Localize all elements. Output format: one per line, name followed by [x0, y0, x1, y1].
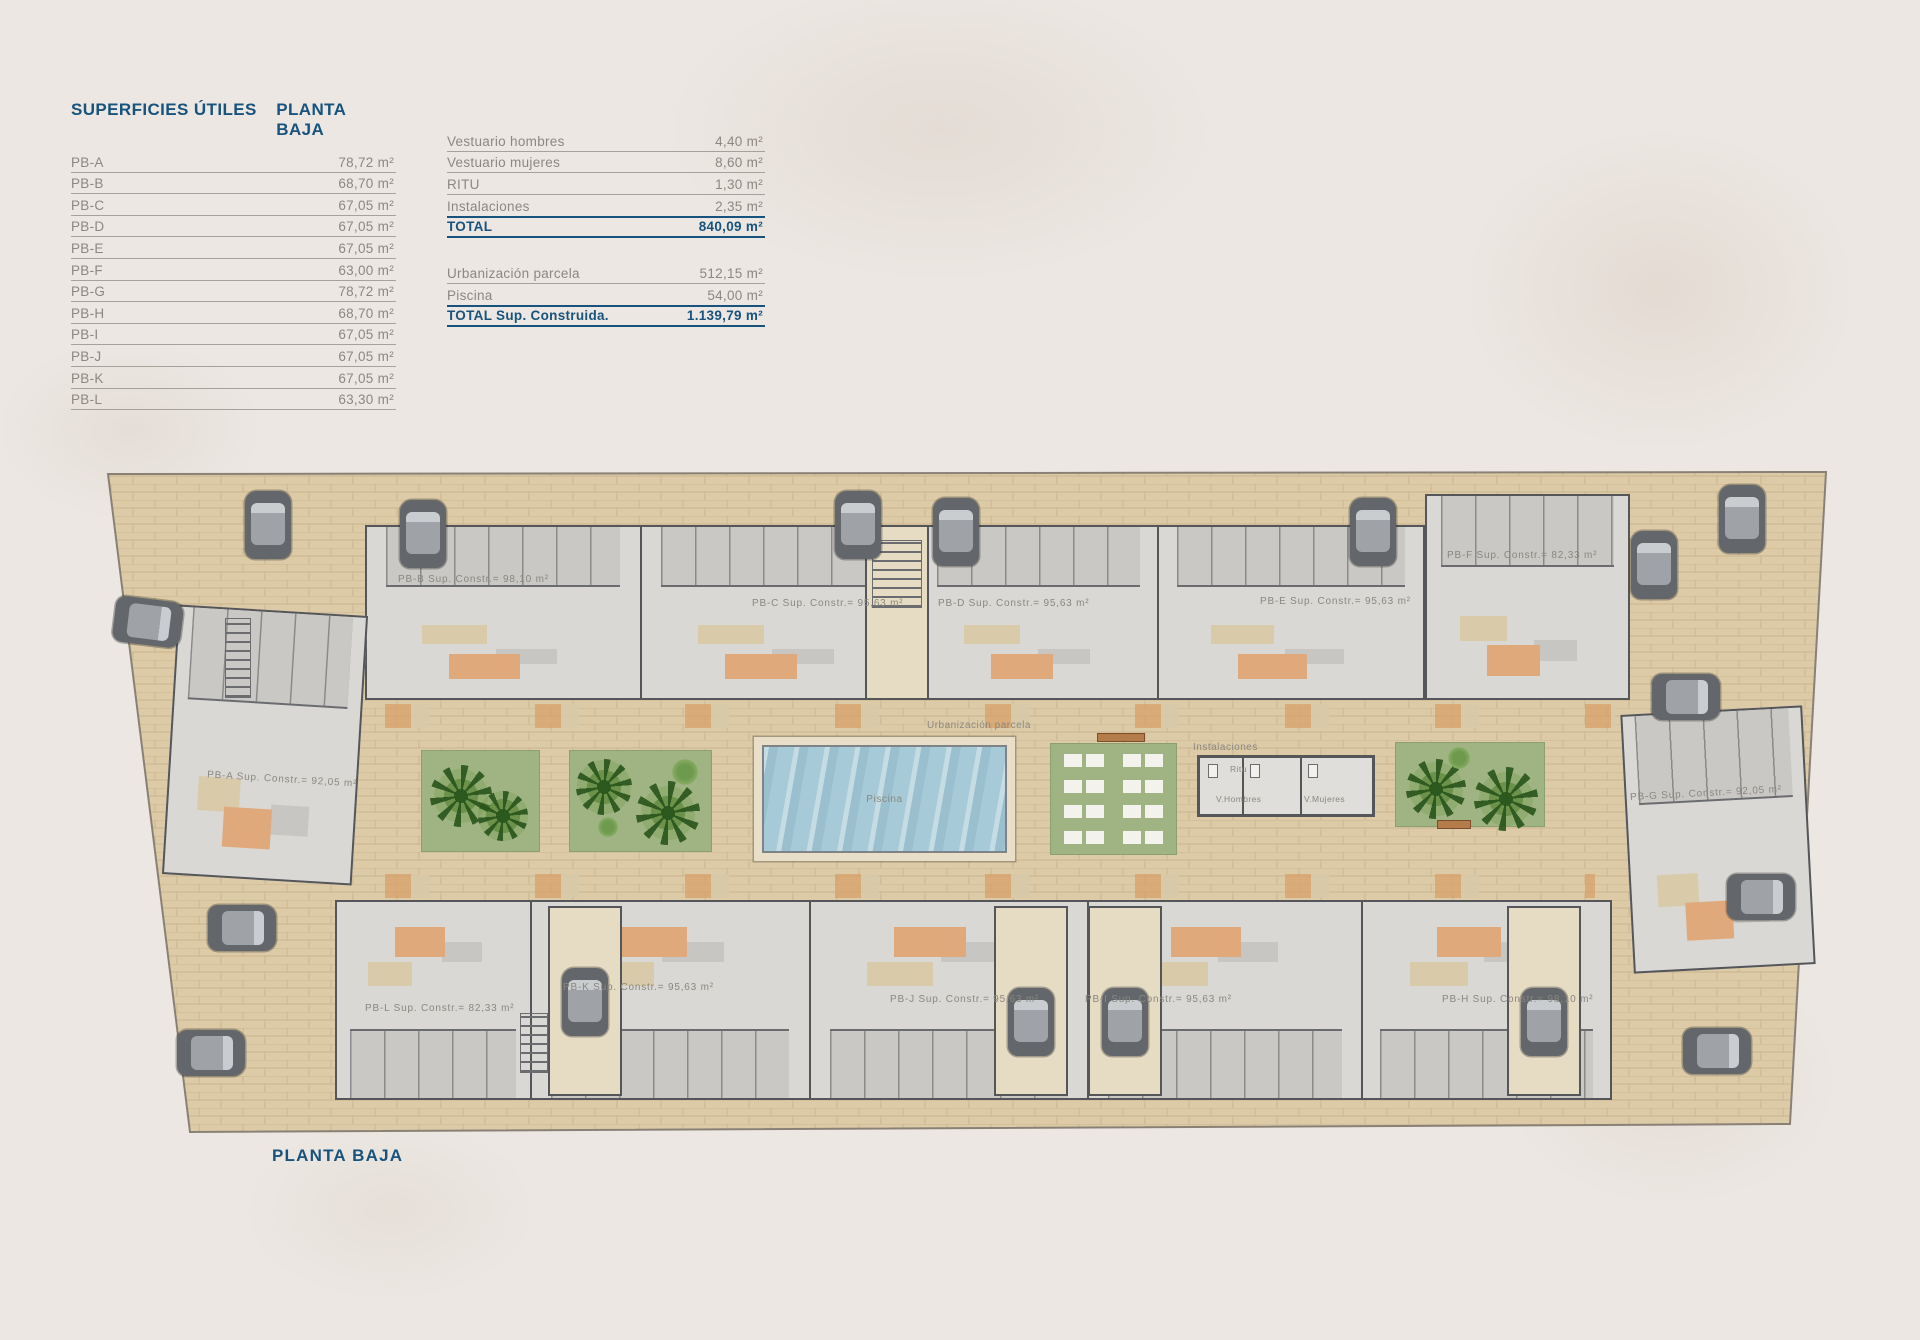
unit-label-pb-l: PB-L Sup. Constr.= 82,33 m² [365, 1003, 514, 1014]
floor-plan: Piscina Ritu V.Hombres V.Mujeres Instala… [100, 468, 1830, 1136]
row-label: PB-B [71, 176, 104, 191]
car-icon [562, 968, 608, 1036]
total-label: TOTAL Sup. Construida. [447, 308, 609, 323]
table-row: PB-C67,05 m² [71, 194, 396, 216]
row-label: Urbanización parcela [447, 266, 580, 281]
plan-caption: PLANTA BAJA [272, 1146, 403, 1166]
sun-lounger-icon [1123, 780, 1163, 793]
stairs [520, 1013, 548, 1073]
table-row: PB-G78,72 m² [71, 281, 396, 303]
palm-tree-icon [636, 781, 700, 845]
car-icon [1727, 874, 1795, 920]
unit-pb-l [337, 902, 532, 1098]
car-icon [400, 500, 446, 568]
sun-lounger-icon [1064, 805, 1104, 818]
row-value: 68,70 m² [338, 306, 394, 321]
row-value: 67,05 m² [338, 198, 394, 213]
row-label: PB-L [71, 392, 102, 407]
car-icon [1652, 674, 1720, 720]
building-pb-a [162, 604, 368, 885]
bush-icon [672, 759, 698, 785]
row-value: 8,60 m² [715, 155, 763, 170]
row-value: 78,72 m² [338, 284, 394, 299]
row-value: 67,05 m² [338, 241, 394, 256]
car-icon [1350, 498, 1396, 566]
garden [569, 750, 712, 852]
bench-icon [1437, 820, 1471, 829]
row-label: PB-G [71, 284, 105, 299]
unit-pb-f [1427, 496, 1628, 698]
unit-label-pb-f: PB-F Sup. Constr.= 82,33 m² [1447, 550, 1597, 561]
row-value: 1,30 m² [715, 177, 763, 192]
table-total-row: TOTAL Sup. Construida.1.139,79 m² [447, 305, 765, 327]
pool-label: Piscina [866, 794, 902, 805]
sun-lounger-icon [1123, 754, 1163, 767]
unit-label-pb-k: PB-K Sup. Constr.= 95,63 m² [563, 982, 714, 993]
building-pb-f [1425, 494, 1630, 700]
toilet-icon [1208, 764, 1218, 778]
total-value: 1.139,79 m² [687, 308, 763, 323]
car-icon [208, 905, 276, 951]
row-label: PB-K [71, 371, 104, 386]
row-label: Piscina [447, 288, 493, 303]
bush-icon [598, 817, 618, 837]
palm-tree-icon [576, 759, 632, 815]
table-row: Piscina54,00 m² [447, 284, 765, 306]
table-row: PB-A78,72 m² [71, 151, 396, 173]
table-total-row: TOTAL840,09 m² [447, 216, 765, 238]
vestuario-hombres-label: V.Hombres [1216, 794, 1261, 804]
watercolor-stain [1380, 60, 1920, 520]
car-icon [1683, 1028, 1751, 1074]
car-icon [1719, 485, 1765, 553]
bush-icon [1448, 747, 1470, 769]
row-value: 68,70 m² [338, 176, 394, 191]
superficies-utiles-table: SUPERFICIES ÚTILES PLANTA BAJA PB-A78,72… [71, 100, 396, 410]
car-icon [835, 491, 881, 559]
unit-pb-g [1622, 708, 1813, 972]
partition-wall [1300, 758, 1302, 814]
unit-label-pb-j: PB-J Sup. Constr.= 95,63 m² [890, 994, 1039, 1005]
row-value: 54,00 m² [707, 288, 763, 303]
row-value: 67,05 m² [338, 349, 394, 364]
row-label: Vestuario hombres [447, 134, 565, 149]
table-row: PB-H68,70 m² [71, 302, 396, 324]
terrace-strip [385, 874, 1595, 898]
row-value: 78,72 m² [338, 155, 394, 170]
table-row: PB-B68,70 m² [71, 173, 396, 195]
garden [421, 750, 540, 852]
row-label: PB-C [71, 198, 104, 213]
table-row: Instalaciones2,35 m² [447, 195, 765, 217]
table-title: SUPERFICIES ÚTILES [71, 100, 276, 140]
toilet-icon [1308, 764, 1318, 778]
row-value: 67,05 m² [338, 327, 394, 342]
sun-lounger-icon [1123, 831, 1163, 844]
table-row: PB-I67,05 m² [71, 324, 396, 346]
table-row: PB-E67,05 m² [71, 237, 396, 259]
unit-label-pb-h: PB-H Sup. Constr.= 98,10 m² [1442, 994, 1593, 1005]
car-icon [933, 498, 979, 566]
sun-lounger-icon [1123, 805, 1163, 818]
table-row: PB-D67,05 m² [71, 216, 396, 238]
table-row: Urbanización parcela512,15 m² [447, 262, 765, 284]
row-label: RITU [447, 177, 480, 192]
sun-lounger-icon [1064, 831, 1104, 844]
ritu-label: Ritu [1230, 764, 1247, 774]
row-label: PB-D [71, 219, 104, 234]
table-row: PB-K67,05 m² [71, 367, 396, 389]
car-icon [111, 595, 184, 649]
table-header: SUPERFICIES ÚTILES PLANTA BAJA [71, 100, 396, 140]
unit-label-pb-b: PB-B Sup. Constr.= 98,10 m² [398, 574, 549, 585]
unit-label-pb-d: PB-D Sup. Constr.= 95,63 m² [938, 598, 1089, 609]
unit-label-pb-i: PB-I Sup. Constr.= 95,63 m² [1085, 994, 1232, 1005]
row-value: 63,00 m² [338, 263, 394, 278]
car-icon [177, 1030, 245, 1076]
sun-lounger-icon [1064, 780, 1104, 793]
built-totals-table: Urbanización parcela512,15 m² Piscina54,… [447, 262, 765, 327]
table-row: PB-L63,30 m² [71, 389, 396, 411]
unit-label-pb-c: PB-C Sup. Constr.= 95,63 m² [752, 598, 903, 609]
vestuario-mujeres-label: V.Mujeres [1304, 794, 1345, 804]
total-value: 840,09 m² [699, 219, 763, 234]
common-areas-table: Vestuario hombres4,40 m² Vestuario mujer… [447, 130, 765, 238]
row-label: Vestuario mujeres [447, 155, 560, 170]
table-row: RITU1,30 m² [447, 173, 765, 195]
row-value: 67,05 m² [338, 219, 394, 234]
building-pb-g [1620, 705, 1815, 973]
instalaciones-label: Instalaciones [1193, 742, 1258, 753]
row-value: 512,15 m² [700, 266, 763, 281]
table-row: PB-F63,00 m² [71, 259, 396, 281]
plan-sheet: { "surfaces_table": { "title": "SUPERFIC… [0, 0, 1920, 1280]
car-icon [245, 491, 291, 559]
facilities-block: Ritu V.Hombres V.Mujeres [1197, 755, 1375, 817]
stairs [225, 618, 251, 698]
table-row: PB-J67,05 m² [71, 345, 396, 367]
total-label: TOTAL [447, 219, 492, 234]
row-value: 2,35 m² [715, 199, 763, 214]
row-value: 67,05 m² [338, 371, 394, 386]
swimming-pool: Piscina [762, 745, 1007, 853]
row-label: PB-A [71, 155, 104, 170]
row-label: PB-H [71, 306, 104, 321]
sun-lounger-area [1050, 743, 1177, 855]
table-row: Vestuario mujeres8,60 m² [447, 152, 765, 174]
palm-tree-icon [478, 791, 528, 841]
row-label: PB-E [71, 241, 104, 256]
row-label: Instalaciones [447, 199, 530, 214]
urbanizacion-label: Urbanización parcela [927, 720, 1031, 731]
row-value: 63,30 m² [338, 392, 394, 407]
car-icon [1631, 531, 1677, 599]
row-value: 4,40 m² [715, 134, 763, 149]
row-label: PB-I [71, 327, 98, 342]
pergola-icon [1097, 733, 1145, 742]
unit-label-pb-e: PB-E Sup. Constr.= 95,63 m² [1260, 596, 1411, 607]
sun-lounger-icon [1064, 754, 1104, 767]
table-subtitle: PLANTA BAJA [276, 100, 396, 140]
palm-tree-icon [1474, 767, 1538, 831]
toilet-icon [1250, 764, 1260, 778]
row-label: PB-F [71, 263, 103, 278]
unit-pb-a [164, 607, 366, 884]
garden [1395, 742, 1545, 827]
row-label: PB-J [71, 349, 101, 364]
table-row: Vestuario hombres4,40 m² [447, 130, 765, 152]
